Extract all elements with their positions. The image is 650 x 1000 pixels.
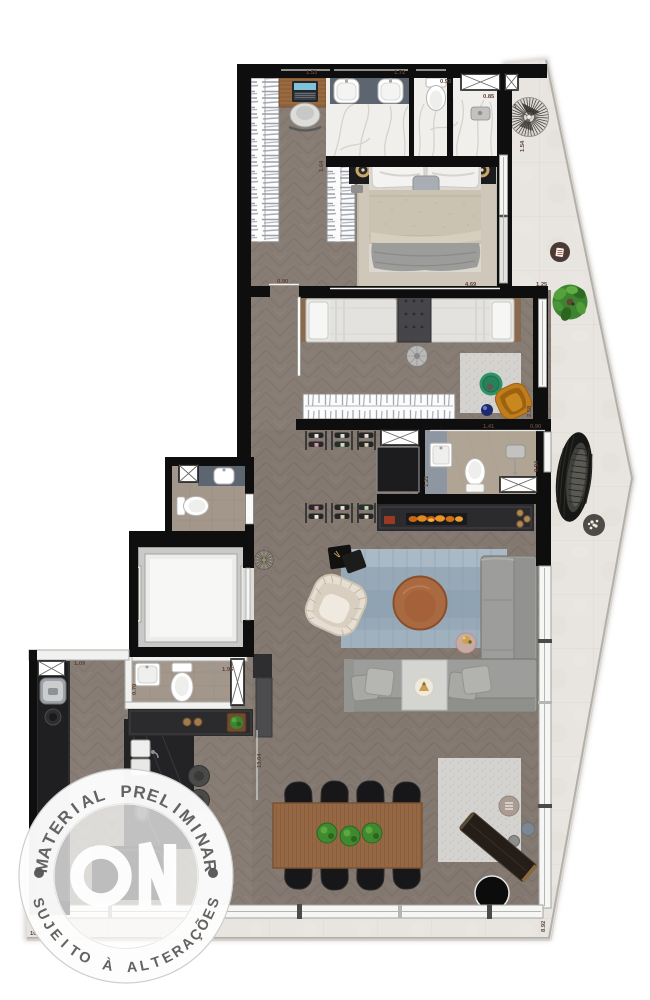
- svg-text:R: R: [200, 858, 220, 873]
- svg-text:13.04: 13.04: [257, 753, 263, 768]
- svg-text:1.96: 1.96: [222, 667, 234, 673]
- svg-text:1.64: 1.64: [319, 160, 325, 172]
- svg-text:4.69: 4.69: [465, 282, 477, 288]
- svg-text:0.85: 0.85: [483, 94, 495, 100]
- svg-text:0.90: 0.90: [530, 424, 541, 430]
- svg-text:1.09: 1.09: [74, 661, 86, 667]
- svg-text:1.72: 1.72: [394, 70, 405, 76]
- svg-text:2.58: 2.58: [527, 405, 533, 417]
- svg-text:0.90: 0.90: [277, 279, 288, 285]
- svg-text:1.41: 1.41: [483, 424, 495, 430]
- svg-text:P: P: [120, 782, 131, 801]
- svg-text:1.21: 1.21: [424, 475, 430, 487]
- svg-text:1.53: 1.53: [306, 70, 318, 76]
- svg-text:8.92: 8.92: [541, 921, 547, 932]
- svg-text:A: A: [126, 959, 138, 976]
- svg-text:0.70: 0.70: [132, 684, 138, 695]
- svg-text:0.93: 0.93: [440, 79, 452, 85]
- svg-text:1.54: 1.54: [520, 140, 526, 152]
- svg-text:1.25: 1.25: [536, 282, 548, 288]
- svg-text:0.94: 0.94: [534, 460, 540, 472]
